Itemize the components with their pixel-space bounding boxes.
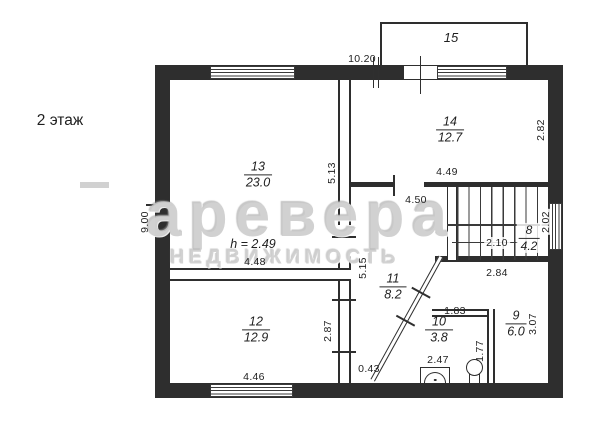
window-bottom xyxy=(210,384,293,397)
door-bath-tick-1 xyxy=(412,287,431,298)
dim-top-width: 10.20 xyxy=(348,53,376,65)
balcony-door-leaf xyxy=(420,56,422,94)
dim-room13-height: 5.13 xyxy=(326,162,338,184)
room-11-area: 8.2 xyxy=(380,288,407,302)
dim-tick-room12-2 xyxy=(332,351,356,353)
dim-room14-width: 4.49 xyxy=(436,166,458,178)
dim-room12-width: 4.46 xyxy=(243,371,265,383)
door-bath-tick-2 xyxy=(396,315,415,326)
room-11-number: 11 xyxy=(380,272,407,287)
toilet-dot-icon xyxy=(434,379,437,382)
room-14-area: 12.7 xyxy=(436,131,464,145)
dim-room9-height: 3.07 xyxy=(527,313,539,335)
watermark-dash xyxy=(80,182,109,188)
room-label-10: 10 3.8 xyxy=(425,315,453,344)
dim-room14-height: 2.82 xyxy=(535,119,547,141)
room-label-14: 14 12.7 xyxy=(436,115,464,144)
dim-room12-height: 2.87 xyxy=(322,320,334,342)
room-10-number: 10 xyxy=(425,315,453,330)
wall-bath-right xyxy=(487,309,495,383)
wall-room12-right xyxy=(338,281,351,383)
room-label-11: 11 8.2 xyxy=(380,272,407,301)
room-label-9: 9 6.0 xyxy=(506,309,527,338)
dim-sink-wall: 1.77 xyxy=(474,340,486,362)
room-9-area: 6.0 xyxy=(506,325,527,339)
room-10-area: 3.8 xyxy=(425,331,453,345)
dim-stair-width: 2.10 xyxy=(484,237,510,249)
dim-tick-room12-1 xyxy=(332,299,356,301)
room-9-number: 9 xyxy=(506,309,527,324)
dim-left-height: 9.00 xyxy=(139,211,151,233)
room-13-number: 13 xyxy=(244,160,272,175)
room-12-number: 12 xyxy=(242,315,270,330)
dim-hall-lower-width: 2.84 xyxy=(486,267,508,279)
floor-plan: аревера НЕДВИЖИМОСТЬ 2 этаж xyxy=(0,0,604,440)
dim-tick-top-2 xyxy=(378,57,379,88)
dim-bottom-gap: 0.43 xyxy=(358,363,380,375)
wall-room13-room12 xyxy=(170,268,351,281)
watermark-brand: аревера xyxy=(146,177,454,251)
toilet-icon xyxy=(420,367,450,384)
toilet-bowl-icon xyxy=(424,372,446,383)
room-8-area: 4.2 xyxy=(519,239,540,253)
room-14-number: 14 xyxy=(436,115,464,130)
dim-bath-width: 2.47 xyxy=(427,354,449,366)
room-8-number: 8 xyxy=(519,224,540,239)
dim-room13-width: 4.48 xyxy=(244,256,266,268)
room-label-12: 12 12.9 xyxy=(242,315,270,344)
room-label-13: 13 23.0 xyxy=(244,160,272,189)
room-15-number: 15 xyxy=(444,30,458,45)
room-13-area: 23.0 xyxy=(244,176,272,190)
window-under-balcony xyxy=(437,66,507,79)
room-label-15: 15 xyxy=(444,31,458,45)
floor-title: 2 этаж xyxy=(37,112,83,130)
ceiling-height-note: h = 2.49 xyxy=(230,237,276,251)
room-12-area: 12.9 xyxy=(242,331,270,345)
dim-hall-width: 4.50 xyxy=(405,194,427,206)
room-label-8: 8 4.2 xyxy=(517,223,542,253)
dim-right-window: 2.02 xyxy=(540,209,552,235)
dim-bath-top-width: 1.83 xyxy=(444,305,466,317)
window-top-left xyxy=(210,66,295,79)
dim-hall-height: 5.15 xyxy=(357,257,369,279)
